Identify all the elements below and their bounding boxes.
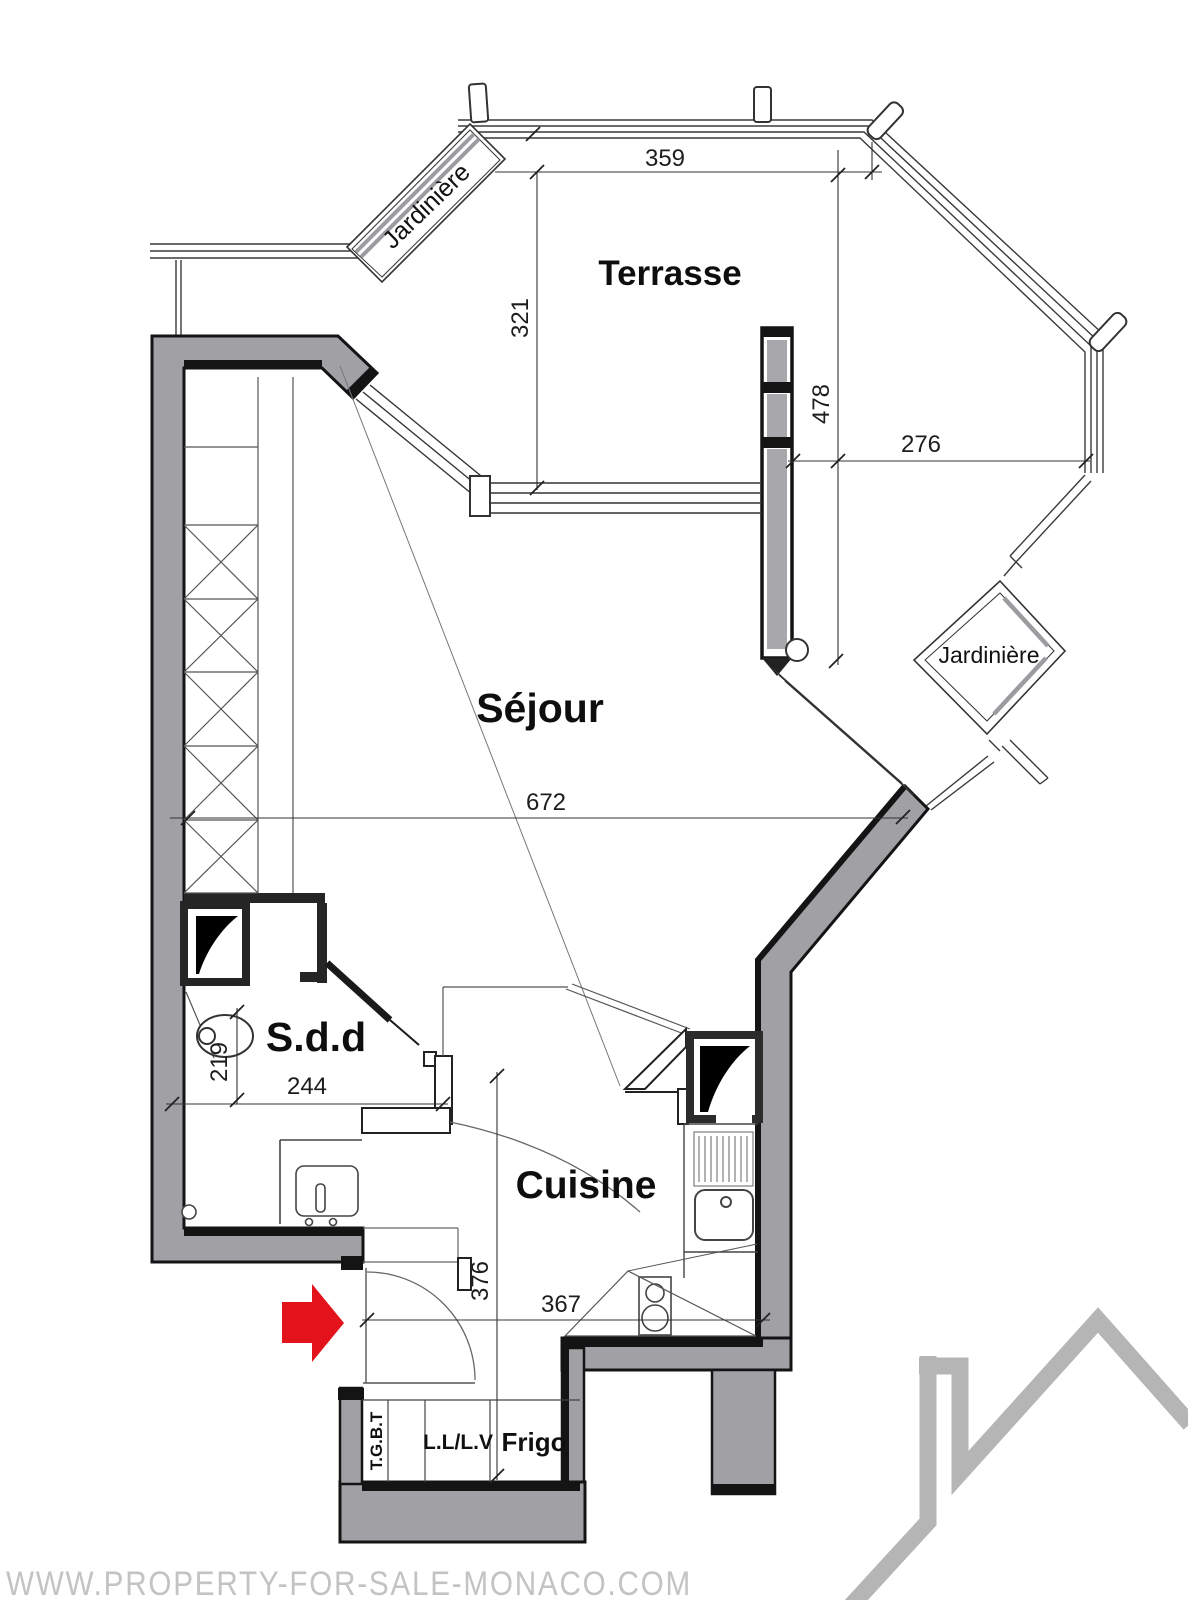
floorplan-page: Jardinière Jardinière xyxy=(0,0,1188,1600)
dimension-labels: 359 321 478 276 672 219 244 376 367 xyxy=(206,145,941,1318)
wall-closet-left xyxy=(340,1388,362,1484)
entrance-arrow-icon xyxy=(282,1284,344,1362)
railing-post-icon xyxy=(865,100,905,142)
railing-post-icon xyxy=(1087,310,1129,353)
shower-icon xyxy=(184,905,246,982)
railing-post-icon xyxy=(754,87,771,122)
dim-hall-depth: 376 xyxy=(467,1261,494,1301)
dim-terrace-right: 276 xyxy=(901,431,941,458)
bathroom-door-leaf xyxy=(327,963,390,1020)
drainer-icon xyxy=(694,1132,753,1186)
walls xyxy=(152,336,928,1542)
wall-left xyxy=(152,336,377,1262)
dimensions xyxy=(165,127,1093,1483)
kitchen-door-jamb xyxy=(625,1029,686,1089)
washer-label: L.L/L.V xyxy=(423,1431,493,1454)
dim-bathroom-width: 244 xyxy=(287,1073,327,1100)
duct-shaft-icon xyxy=(690,1035,759,1124)
floor-drain-icon xyxy=(182,1205,196,1219)
planter-right-label: Jardinière xyxy=(939,642,1040,668)
house-logo-icon xyxy=(838,1320,1188,1600)
bathroom-label: S.d.d xyxy=(266,1014,366,1060)
floorplan-svg: Jardinière Jardinière xyxy=(0,0,1188,1600)
railing-posts xyxy=(469,83,1129,353)
living-label: Séjour xyxy=(476,685,604,731)
dim-divider-wall: 478 xyxy=(808,384,835,424)
railing-post-icon xyxy=(469,83,489,122)
bathroom-sink-icon xyxy=(182,1140,362,1226)
windows xyxy=(356,385,914,795)
planter-right: Jardinière xyxy=(914,581,1065,734)
dim-living-width: 672 xyxy=(526,789,566,816)
terrace-divider-wall xyxy=(762,328,808,676)
planter-top-left: Jardinière xyxy=(347,124,505,282)
dim-kitchen-width: 367 xyxy=(541,1291,581,1318)
wall-end-post-icon xyxy=(786,639,808,661)
dim-terrace-width: 359 xyxy=(645,145,685,172)
watermark: WWW.PROPERTY-FOR-SALE-MONACO.COM xyxy=(6,1565,692,1600)
fridge-label: Frigo xyxy=(502,1427,567,1457)
cooktop-icon xyxy=(639,1277,671,1335)
kitchen-label: Cuisine xyxy=(516,1164,657,1207)
wall-stub-lower-right xyxy=(712,1370,775,1494)
terrace-label: Terrasse xyxy=(598,254,741,293)
utility-labels: T.G.B.T L.L/L.V Frigo xyxy=(367,1411,567,1470)
wall-bathroom-right xyxy=(317,903,327,983)
dim-terrace-depth: 321 xyxy=(507,298,534,338)
electrical-panel-label: T.G.B.T xyxy=(367,1411,386,1470)
dim-bathroom-depth: 219 xyxy=(206,1042,233,1082)
kitchen-sink-icon xyxy=(695,1190,753,1240)
wall-right-diagonal xyxy=(758,786,928,1348)
